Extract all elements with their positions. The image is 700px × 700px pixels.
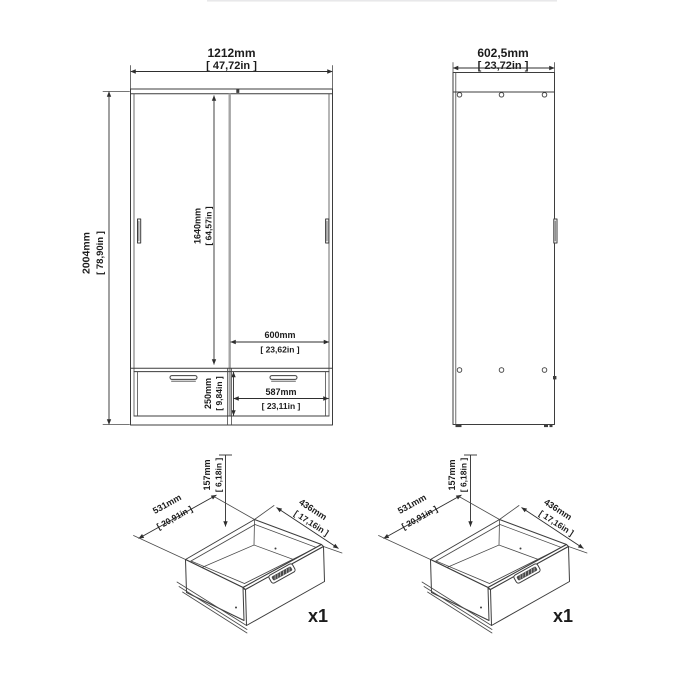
drawer-width-in-label: [ 23,11in ]	[262, 401, 301, 411]
technical-drawing-page: 1212mm [ 47,72in ] 2004mm [ 78,90in ] 16…	[0, 0, 700, 700]
right-door-handle	[326, 219, 329, 243]
drawer-detail-right-drawing: 157mm [ 6,18in ] 531mm [ 20,91in ] 436mm…	[379, 455, 588, 633]
drawer-width-mm-label: 587mm	[265, 387, 296, 397]
drawerL-quantity-label: x1	[308, 606, 328, 626]
drawerL-height-in-label: [ 6,18in ]	[214, 458, 224, 493]
drawer-height-mm-label: 250mm	[203, 378, 213, 409]
drawerR-quantity-label: x1	[553, 606, 573, 626]
technical-drawing-canvas: 1212mm [ 47,72in ] 2004mm [ 78,90in ] 16…	[0, 0, 700, 700]
door-roller-mark	[236, 89, 239, 93]
side-view-drawing: 602,5mm [ 23,72in ]	[453, 46, 557, 427]
door-height-mm-label: 1640mm	[193, 208, 203, 244]
side-depth-mm-label: 602,5mm	[477, 46, 528, 60]
drawerR-height-mm-label: 157mm	[447, 459, 457, 490]
drawerR-height-in-label: [ 6,18in ]	[459, 458, 469, 493]
drawer-height-in-label: [ 9,84in ]	[214, 376, 224, 411]
front-height-in-label: [ 78,90in ]	[95, 231, 106, 275]
top-edge-artifact	[207, 0, 557, 2]
drawerL-height-mm-label: 157mm	[202, 459, 212, 490]
front-view-drawing: 1212mm [ 47,72in ] 2004mm [ 78,90in ] 16…	[81, 46, 333, 425]
side-door-handle	[554, 219, 557, 243]
left-door-handle	[138, 219, 141, 243]
front-width-mm-label: 1212mm	[207, 46, 255, 60]
front-height-mm-label: 2004mm	[81, 232, 93, 274]
door-stop-mark	[553, 376, 556, 379]
door-width-mm-label: 600mm	[264, 330, 295, 340]
door-height-in-label: [ 64,57in ]	[204, 206, 214, 245]
front-width-in-label: [ 47,72in ]	[206, 60, 257, 72]
door-width-in-label: [ 23,62in ]	[260, 345, 299, 355]
drawer-detail-left-drawing: 157mm [ 6,18in ] 531mm [ 20,91in ] 436mm…	[134, 455, 343, 633]
side-panel-outline	[453, 73, 555, 425]
side-depth-in-label: [ 23,72in ]	[478, 60, 529, 72]
